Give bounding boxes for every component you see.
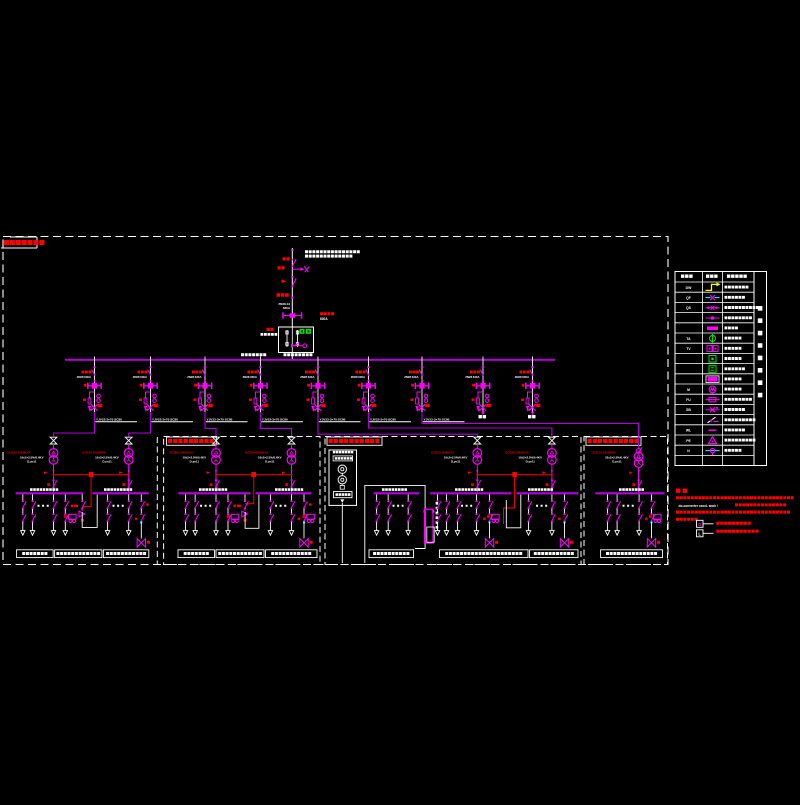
svg-text:M: M xyxy=(687,388,690,392)
svg-text:D,yn11: D,yn11 xyxy=(27,459,37,463)
svg-text:ZN28 630A: ZN28 630A xyxy=(351,375,365,379)
svg-text:D,yn11: D,yn11 xyxy=(451,459,461,463)
svg-text:ZN28 630A: ZN28 630A xyxy=(243,375,257,379)
svg-text:D,yn11: D,yn11 xyxy=(265,459,275,463)
svg-text:YJV22-3×70 SC80: YJV22-3×70 SC80 xyxy=(207,418,233,422)
svg-text:DW: DW xyxy=(686,286,692,290)
svg-text:YJV22-3×70 SC80: YJV22-3×70 SC80 xyxy=(152,418,178,422)
svg-text:QS: QS xyxy=(686,306,692,310)
svg-text:630A: 630A xyxy=(283,306,291,310)
svg-text:ZN28 630A: ZN28 630A xyxy=(404,375,418,379)
svg-text:SCB10-1000KVA: SCB10-1000KVA xyxy=(431,451,455,455)
svg-text:D,yn11: D,yn11 xyxy=(190,459,200,463)
svg-text:SCB10-1000KVA: SCB10-1000KVA xyxy=(505,451,529,455)
svg-text:SCB10-1000KVA: SCB10-1000KVA xyxy=(245,451,269,455)
svg-text:do-converter xxxxL work !: do-converter xxxxL work ! xyxy=(679,504,719,508)
svg-text:L: L xyxy=(698,532,701,537)
svg-text:YJV22-3×70 SC80: YJV22-3×70 SC80 xyxy=(96,418,122,422)
svg-text:YJV22-3×70 SC80: YJV22-3×70 SC80 xyxy=(320,418,346,422)
svg-text:D,yn11: D,yn11 xyxy=(102,459,112,463)
svg-text:YJV22-3×70 SC80: YJV22-3×70 SC80 xyxy=(370,418,396,422)
svg-text:SCB10-1000KVA: SCB10-1000KVA xyxy=(7,451,31,455)
svg-text:TA: TA xyxy=(686,337,691,341)
svg-text:ZN28 630A: ZN28 630A xyxy=(187,375,201,379)
svg-text:630A: 630A xyxy=(320,317,328,321)
svg-text:PE: PE xyxy=(686,439,691,443)
svg-text:FU: FU xyxy=(686,398,691,402)
svg-text:ZN28 630A: ZN28 630A xyxy=(77,375,91,379)
svg-text:QF: QF xyxy=(686,296,691,300)
svg-text:WL: WL xyxy=(686,429,691,433)
svg-text:SCB10-1000KVA: SCB10-1000KVA xyxy=(592,451,616,455)
svg-text:SB: SB xyxy=(686,408,691,412)
svg-text:SCB10-1000KVA: SCB10-1000KVA xyxy=(82,451,106,455)
svg-text:D,yn11: D,yn11 xyxy=(526,459,536,463)
svg-text:D,yn11: D,yn11 xyxy=(612,459,622,463)
svg-text:ZN28 630A: ZN28 630A xyxy=(133,375,147,379)
svg-text:G: G xyxy=(698,522,701,527)
svg-text:ZN28 630A: ZN28 630A xyxy=(465,375,479,379)
svg-text:ZN28 630A: ZN28 630A xyxy=(300,375,314,379)
svg-text:TV: TV xyxy=(686,347,691,351)
svg-text:ZN28 630A: ZN28 630A xyxy=(515,375,529,379)
svg-text:YJV22-3×70 SC80: YJV22-3×70 SC80 xyxy=(424,418,450,422)
svg-text:YJV22-3×70 SC80: YJV22-3×70 SC80 xyxy=(262,418,288,422)
svg-text:SCB10-1000KVA: SCB10-1000KVA xyxy=(170,451,194,455)
